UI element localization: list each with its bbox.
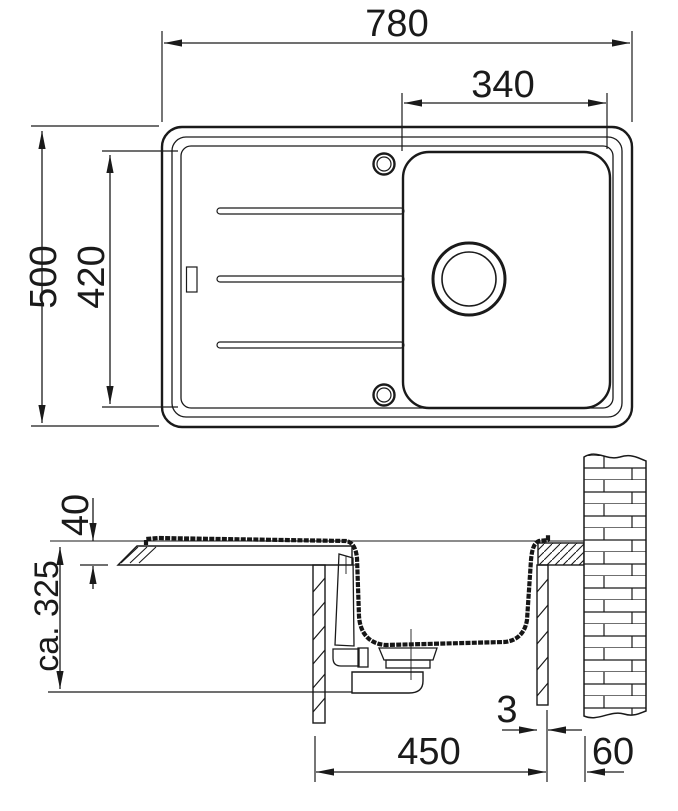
dim-3-label: 3 [496, 689, 517, 731]
dim-420-label: 420 [71, 245, 113, 308]
dim-500-label: 500 [23, 245, 65, 308]
sink-drawing-svg: 780 340 500 420 40 [0, 0, 678, 811]
technical-drawing-canvas: 780 340 500 420 40 [0, 0, 678, 811]
dim-450-label: 450 [397, 731, 460, 773]
overflow-duct [335, 554, 355, 646]
tap-hole-bottom [374, 385, 395, 406]
dim-ca325: ca. 325 [28, 547, 352, 692]
dim-ca325-label: ca. 325 [28, 560, 66, 672]
cabinet-panel-right [537, 565, 548, 705]
countertop-right [538, 543, 584, 565]
sink-outer-edge [162, 127, 632, 427]
sink-section-profile [146, 535, 548, 645]
tap-hole-top [374, 154, 395, 175]
dim-340: 340 [402, 64, 607, 151]
dim-340-label: 340 [471, 64, 534, 106]
cabinet-panel-left [313, 565, 325, 723]
sink-inner-rim [181, 146, 613, 408]
section-view [50, 454, 646, 723]
drain-hole [433, 243, 505, 315]
dim-3: 3 [496, 689, 582, 731]
sink-middle-edge [172, 137, 622, 417]
overflow-slot [187, 267, 198, 292]
dim-780: 780 [162, 3, 632, 122]
drain-trap-assembly [333, 629, 437, 693]
drainer-grooves [217, 208, 404, 348]
dimensions: 780 340 500 420 40 [23, 3, 634, 782]
brick-wall [584, 454, 646, 718]
top-view [162, 127, 632, 427]
countertop-left [118, 546, 352, 565]
dim-60: 60 [585, 731, 634, 782]
dim-40-label: 40 [55, 494, 97, 536]
dim-780-label: 780 [365, 3, 428, 45]
dim-60-label: 60 [592, 731, 634, 773]
